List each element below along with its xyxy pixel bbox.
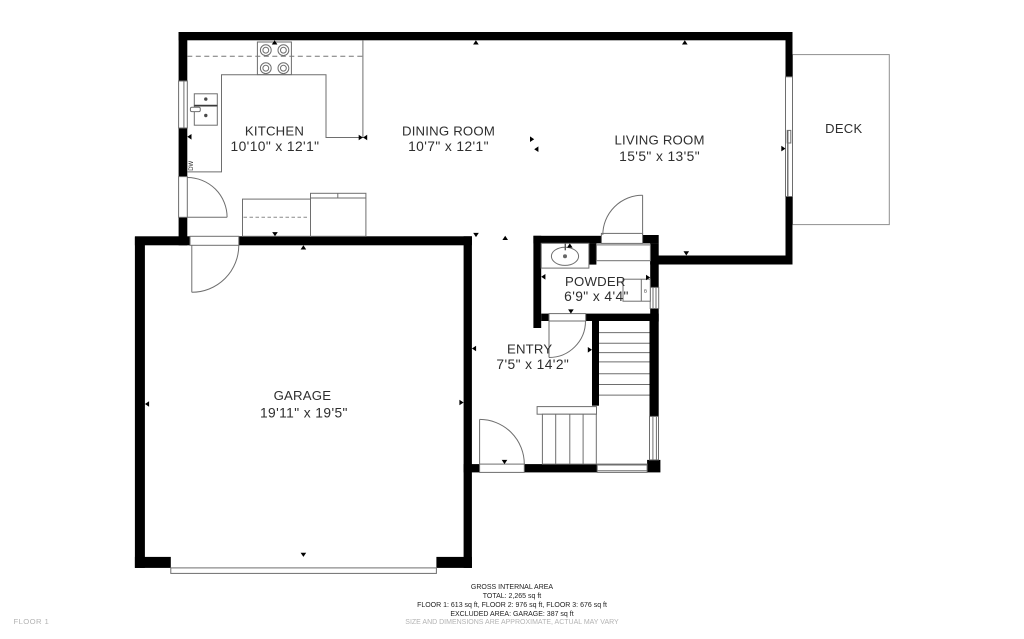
svg-text:FLOOR 1: FLOOR 1 bbox=[14, 617, 50, 626]
svg-text:GARAGE: GARAGE bbox=[274, 388, 332, 403]
svg-text:GROSS INTERNAL AREA: GROSS INTERNAL AREA bbox=[471, 584, 554, 591]
svg-text:ENTRY: ENTRY bbox=[507, 341, 552, 356]
svg-text:DECK: DECK bbox=[825, 121, 862, 136]
svg-text:15'5" x 13'5": 15'5" x 13'5" bbox=[619, 149, 700, 164]
svg-text:7'5" x 14'2": 7'5" x 14'2" bbox=[496, 357, 569, 372]
svg-text:POWDER: POWDER bbox=[565, 274, 626, 289]
svg-text:DW: DW bbox=[189, 160, 195, 170]
svg-text:FLOOR 1: 613 sq ft, FLOOR 2: 9: FLOOR 1: 613 sq ft, FLOOR 2: 976 sq ft, … bbox=[417, 602, 607, 609]
svg-text:DINING ROOM: DINING ROOM bbox=[402, 124, 495, 139]
svg-text:19'11" x 19'5": 19'11" x 19'5" bbox=[260, 405, 348, 420]
svg-text:6'9" x 4'4": 6'9" x 4'4" bbox=[564, 289, 629, 304]
svg-text:SIZE AND DIMENSIONS ARE APPROX: SIZE AND DIMENSIONS ARE APPROXIMATE, ACT… bbox=[405, 619, 619, 626]
svg-text:LIVING ROOM: LIVING ROOM bbox=[615, 132, 705, 147]
svg-text:KITCHEN: KITCHEN bbox=[245, 124, 304, 139]
svg-text:EXCLUDED AREA: GARAGE: 387 sq: EXCLUDED AREA: GARAGE: 387 sq ft bbox=[450, 611, 573, 618]
svg-text:10'7" x 12'1": 10'7" x 12'1" bbox=[408, 139, 489, 154]
svg-text:B: B bbox=[644, 289, 647, 294]
svg-text:TOTAL: 2,265 sq ft: TOTAL: 2,265 sq ft bbox=[483, 593, 542, 600]
svg-text:10'10" x 12'1": 10'10" x 12'1" bbox=[231, 139, 320, 154]
